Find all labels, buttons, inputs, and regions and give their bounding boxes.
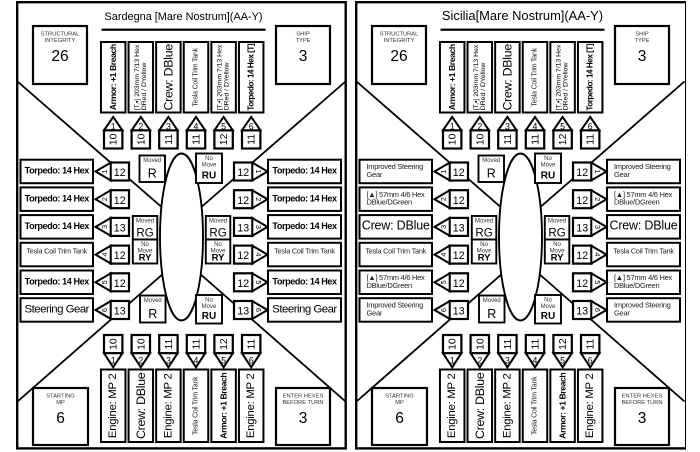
svg-text:SHIP: SHIP	[296, 32, 310, 38]
svg-text:26: 26	[390, 48, 407, 65]
svg-text:2: 2	[477, 121, 482, 131]
svg-text:12: 12	[453, 195, 465, 207]
svg-text:Crew: DBlue: Crew: DBlue	[134, 372, 148, 439]
svg-text:DRed / DYellow: DRed / DYellow	[224, 63, 231, 111]
svg-text:12: 12	[558, 133, 569, 145]
svg-text:12: 12	[114, 250, 126, 262]
svg-text:2: 2	[100, 197, 109, 201]
svg-text:1: 1	[450, 121, 455, 131]
svg-text:4: 4	[194, 355, 199, 365]
svg-text:BEFORE TURN: BEFORE TURN	[282, 400, 323, 406]
svg-text:R: R	[148, 307, 157, 321]
svg-text:DRed / DYellow: DRed / DYellow	[141, 63, 148, 111]
svg-text:11: 11	[192, 338, 203, 349]
svg-text:4: 4	[533, 355, 538, 365]
svg-text:DBlue/DGreen: DBlue/DGreen	[614, 198, 660, 207]
svg-text:Crew: DBlue: Crew: DBlue	[161, 44, 175, 111]
svg-text:6: 6	[593, 308, 602, 312]
svg-text:13: 13	[576, 223, 588, 235]
svg-text:6: 6	[588, 355, 593, 365]
svg-text:12: 12	[576, 167, 588, 179]
svg-text:Moved: Moved	[136, 217, 154, 224]
svg-text:12: 12	[576, 195, 588, 207]
svg-text:11: 11	[503, 338, 514, 349]
svg-text:5: 5	[254, 280, 263, 284]
svg-text:1: 1	[593, 169, 602, 173]
svg-text:Moved: Moved	[548, 217, 566, 224]
svg-text:DRed / DYellow: DRed / DYellow	[480, 63, 487, 111]
svg-text:Tesla Coil Trim Tank: Tesla Coil Trim Tank	[193, 376, 200, 435]
svg-text:[T,▪] 203mm 7/13 Hex: [T,▪] 203mm 7/13 Hex	[556, 44, 563, 110]
svg-text:RY: RY	[212, 253, 226, 264]
svg-text:12: 12	[114, 195, 126, 207]
svg-text:10: 10	[448, 338, 459, 350]
svg-text:R: R	[487, 166, 496, 180]
svg-text:Torpedo: 14 Hex: Torpedo: 14 Hex	[25, 221, 90, 231]
svg-text:5: 5	[221, 355, 226, 365]
svg-text:R: R	[487, 307, 496, 321]
svg-text:12: 12	[453, 250, 465, 262]
svg-text:12: 12	[237, 278, 249, 290]
svg-text:RU: RU	[202, 170, 216, 181]
svg-text:11: 11	[164, 338, 175, 349]
svg-text:Engine: MP 2: Engine: MP 2	[584, 373, 596, 438]
svg-text:Armor: +1 Breach: Armor: +1 Breach	[219, 373, 229, 439]
svg-text:Torpedo: 14 Hex: Torpedo: 14 Hex	[25, 193, 90, 203]
svg-text:Torpedo: 14 Hex: Torpedo: 14 Hex	[25, 277, 90, 287]
svg-text:10: 10	[448, 133, 459, 145]
svg-text:3: 3	[638, 410, 647, 427]
svg-text:Torpedo: 14 Hex: Torpedo: 14 Hex	[272, 193, 337, 203]
svg-text:2: 2	[477, 355, 482, 365]
svg-text:13: 13	[576, 306, 588, 318]
svg-text:Engine: MP 2: Engine: MP 2	[245, 373, 257, 438]
svg-text:6: 6	[100, 308, 109, 312]
svg-text:3: 3	[593, 225, 602, 229]
svg-text:Engine: MP 2: Engine: MP 2	[446, 373, 458, 438]
svg-text:6: 6	[56, 410, 65, 427]
svg-text:6: 6	[254, 308, 263, 312]
svg-text:12: 12	[114, 167, 126, 179]
svg-text:4: 4	[439, 253, 448, 257]
svg-text:3: 3	[254, 225, 263, 229]
svg-text:4: 4	[100, 253, 109, 257]
svg-text:2: 2	[138, 355, 143, 365]
svg-text:12: 12	[453, 278, 465, 290]
svg-text:10: 10	[136, 133, 147, 145]
svg-text:MP: MP	[56, 400, 65, 406]
svg-text:3: 3	[299, 48, 308, 65]
svg-text:2: 2	[254, 197, 263, 201]
svg-text:DBlue/DGreen: DBlue/DGreen	[367, 281, 413, 290]
svg-text:Steering Gear: Steering Gear	[272, 303, 337, 315]
svg-text:Tesla Coil Trim Tank: Tesla Coil Trim Tank	[274, 247, 335, 256]
svg-text:Crew: DBlue: Crew: DBlue	[473, 372, 487, 439]
svg-text:[T,▪] 203mm 7/13 Hex: [T,▪] 203mm 7/13 Hex	[217, 44, 224, 110]
svg-text:3: 3	[439, 225, 448, 229]
svg-text:2: 2	[439, 197, 448, 201]
svg-text:Gear: Gear	[614, 309, 630, 318]
svg-text:No: No	[205, 156, 213, 162]
svg-text:STARTING: STARTING	[46, 394, 75, 400]
svg-text:11: 11	[503, 134, 514, 145]
svg-text:5: 5	[221, 121, 226, 131]
svg-text:12: 12	[114, 278, 126, 290]
svg-text:3: 3	[166, 355, 171, 365]
svg-text:12: 12	[237, 167, 249, 179]
svg-text:Gear: Gear	[367, 309, 383, 318]
svg-text:MP: MP	[395, 400, 404, 406]
svg-text:12: 12	[453, 167, 465, 179]
svg-text:3: 3	[505, 355, 510, 365]
svg-text:12: 12	[558, 338, 569, 350]
svg-text:13: 13	[453, 306, 465, 318]
svg-text:RU: RU	[541, 170, 555, 181]
svg-text:4: 4	[194, 121, 199, 131]
svg-text:DBlue/DGreen: DBlue/DGreen	[614, 281, 660, 290]
svg-text:Torpedo: 14 Hex: Torpedo: 14 Hex	[272, 166, 337, 176]
svg-text:2: 2	[593, 197, 602, 201]
svg-text:Crew: DBlue: Crew: DBlue	[362, 218, 430, 232]
svg-text:Tesla Coil Trim Tank: Tesla Coil Trim Tank	[365, 247, 426, 256]
svg-text:1: 1	[111, 355, 116, 365]
svg-text:6: 6	[588, 121, 593, 131]
svg-text:TYPE: TYPE	[634, 38, 649, 44]
svg-text:Move: Move	[202, 163, 217, 169]
svg-text:1: 1	[450, 355, 455, 365]
svg-text:Sicilia[Mare Nostrum](AA-Y): Sicilia[Mare Nostrum](AA-Y)	[442, 8, 603, 23]
svg-text:4: 4	[533, 121, 538, 131]
svg-text:RU: RU	[202, 311, 216, 322]
svg-text:13: 13	[114, 223, 126, 235]
svg-text:Moved: Moved	[209, 217, 227, 224]
svg-text:Moved: Moved	[475, 217, 493, 224]
svg-text:6: 6	[439, 308, 448, 312]
svg-text:Tesla Coil Trim Tank: Tesla Coil Trim Tank	[613, 247, 674, 256]
svg-text:Armor: +1 Breach: Armor: +1 Breach	[447, 44, 457, 110]
svg-text:1: 1	[439, 169, 448, 173]
svg-text:5: 5	[100, 280, 109, 284]
svg-text:R: R	[148, 166, 157, 180]
svg-text:No: No	[544, 298, 552, 304]
svg-text:STARTING: STARTING	[385, 394, 414, 400]
svg-text:SHIP: SHIP	[635, 32, 649, 38]
svg-text:RG: RG	[475, 228, 492, 240]
svg-text:26: 26	[51, 48, 68, 65]
svg-text:12: 12	[576, 278, 588, 290]
svg-text:12: 12	[237, 195, 249, 207]
svg-text:Torpedo: 14 Hex [T]: Torpedo: 14 Hex [T]	[247, 43, 256, 111]
svg-text:Armor: +1 Breach: Armor: +1 Breach	[558, 373, 568, 439]
svg-text:INTEGRITY: INTEGRITY	[45, 38, 76, 44]
svg-text:3: 3	[505, 121, 510, 131]
svg-text:10: 10	[475, 133, 486, 145]
svg-text:13: 13	[114, 306, 126, 318]
svg-text:ENTER HEXES: ENTER HEXES	[283, 394, 324, 400]
svg-text:6: 6	[249, 121, 254, 131]
svg-text:Engine: MP 2: Engine: MP 2	[162, 373, 174, 438]
svg-text:11: 11	[531, 338, 542, 349]
svg-text:RY: RY	[139, 253, 153, 264]
svg-text:RU: RU	[541, 311, 555, 322]
svg-text:RY: RY	[551, 253, 565, 264]
svg-text:DRed / DYellow: DRed / DYellow	[563, 63, 570, 111]
svg-text:3: 3	[299, 410, 308, 427]
svg-text:Engine: MP 2: Engine: MP 2	[501, 373, 513, 438]
svg-text:RG: RG	[136, 228, 153, 240]
svg-text:Tesla Coil Trim Tank: Tesla Coil Trim Tank	[532, 376, 539, 435]
svg-text:Torpedo: 14 Hex: Torpedo: 14 Hex	[25, 166, 90, 176]
svg-text:13: 13	[237, 223, 249, 235]
svg-text:No: No	[205, 298, 213, 304]
svg-text:BEFORE TURN: BEFORE TURN	[621, 400, 662, 406]
svg-text:12: 12	[219, 133, 230, 145]
svg-text:4: 4	[254, 253, 263, 257]
svg-text:10: 10	[136, 338, 147, 350]
svg-text:13: 13	[237, 306, 249, 318]
svg-text:Moved: Moved	[483, 298, 501, 304]
svg-text:Engine: MP 2: Engine: MP 2	[107, 373, 119, 438]
svg-text:12: 12	[576, 250, 588, 262]
svg-text:11: 11	[586, 338, 597, 349]
svg-text:4: 4	[593, 253, 602, 257]
svg-text:13: 13	[453, 223, 465, 235]
svg-text:12: 12	[237, 250, 249, 262]
svg-text:[T,▪] 203mm 7/13 Hex: [T,▪] 203mm 7/13 Hex	[473, 44, 480, 110]
svg-text:RY: RY	[478, 253, 492, 264]
svg-text:Tesla Coil Trim Tank: Tesla Coil Trim Tank	[193, 47, 200, 106]
svg-text:STRUCTURAL: STRUCTURAL	[41, 32, 80, 38]
svg-text:No: No	[544, 156, 552, 162]
svg-text:1: 1	[254, 169, 263, 173]
svg-text:Tesla Coil Trim Tank: Tesla Coil Trim Tank	[532, 47, 539, 106]
svg-text:RG: RG	[209, 228, 226, 240]
svg-text:3: 3	[166, 121, 171, 131]
svg-text:6: 6	[395, 410, 404, 427]
svg-text:12: 12	[219, 338, 230, 350]
svg-text:1: 1	[111, 121, 116, 131]
svg-text:11: 11	[531, 134, 542, 145]
svg-text:RG: RG	[548, 228, 565, 240]
svg-text:5: 5	[593, 280, 602, 284]
svg-text:Crew: DBlue: Crew: DBlue	[500, 44, 514, 111]
svg-text:11: 11	[164, 134, 175, 145]
svg-text:[T,▪] 203mm 7/13 Hex: [T,▪] 203mm 7/13 Hex	[134, 44, 141, 110]
svg-text:11: 11	[247, 134, 258, 145]
svg-text:11: 11	[247, 338, 258, 349]
svg-text:2: 2	[138, 121, 143, 131]
svg-text:Steering Gear: Steering Gear	[25, 303, 90, 315]
svg-text:3: 3	[100, 225, 109, 229]
svg-text:10: 10	[109, 133, 120, 145]
svg-text:Tesla Coil Trim Tank: Tesla Coil Trim Tank	[26, 247, 87, 256]
svg-text:11: 11	[586, 134, 597, 145]
svg-text:Move: Move	[541, 304, 556, 310]
svg-text:5: 5	[560, 355, 565, 365]
svg-text:10: 10	[109, 338, 120, 350]
svg-text:STRUCTURAL: STRUCTURAL	[380, 32, 419, 38]
svg-text:Gear: Gear	[614, 170, 630, 179]
svg-text:Gear: Gear	[367, 170, 383, 179]
svg-text:Crew: DBlue: Crew: DBlue	[610, 218, 678, 232]
svg-text:Torpedo: 14 Hex: Torpedo: 14 Hex	[272, 221, 337, 231]
svg-text:Sardegna [Mare Nostrum](AA-Y): Sardegna [Mare Nostrum](AA-Y)	[105, 11, 263, 23]
svg-text:11: 11	[192, 134, 203, 145]
svg-text:5: 5	[560, 121, 565, 131]
svg-text:1: 1	[100, 169, 109, 173]
svg-text:DBlue/DGreen: DBlue/DGreen	[367, 198, 413, 207]
svg-text:Moved: Moved	[144, 298, 162, 304]
svg-text:INTEGRITY: INTEGRITY	[384, 38, 415, 44]
svg-text:Moved: Moved	[482, 158, 500, 164]
svg-text:ENTER HEXES: ENTER HEXES	[622, 394, 663, 400]
svg-text:Moved: Moved	[143, 158, 161, 164]
svg-text:Move: Move	[202, 304, 217, 310]
svg-text:10: 10	[475, 338, 486, 350]
svg-text:Torpedo: 14 Hex [T]: Torpedo: 14 Hex [T]	[586, 43, 595, 111]
svg-text:Torpedo: 14 Hex: Torpedo: 14 Hex	[272, 277, 337, 287]
svg-text:Move: Move	[541, 163, 556, 169]
svg-text:3: 3	[638, 48, 647, 65]
svg-text:TYPE: TYPE	[295, 38, 310, 44]
svg-text:Armor: +1 Breach: Armor: +1 Breach	[108, 44, 118, 110]
svg-text:5: 5	[439, 280, 448, 284]
svg-text:6: 6	[249, 355, 254, 365]
